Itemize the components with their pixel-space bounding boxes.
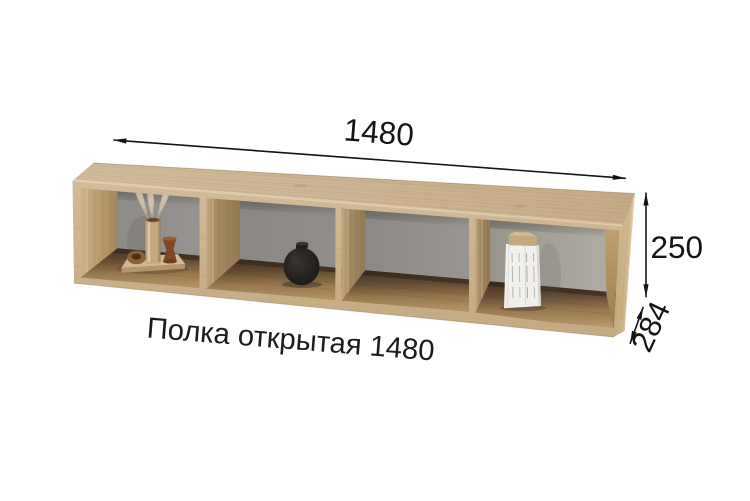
svg-text:1480: 1480: [343, 111, 416, 153]
svg-text:250: 250: [651, 229, 704, 265]
